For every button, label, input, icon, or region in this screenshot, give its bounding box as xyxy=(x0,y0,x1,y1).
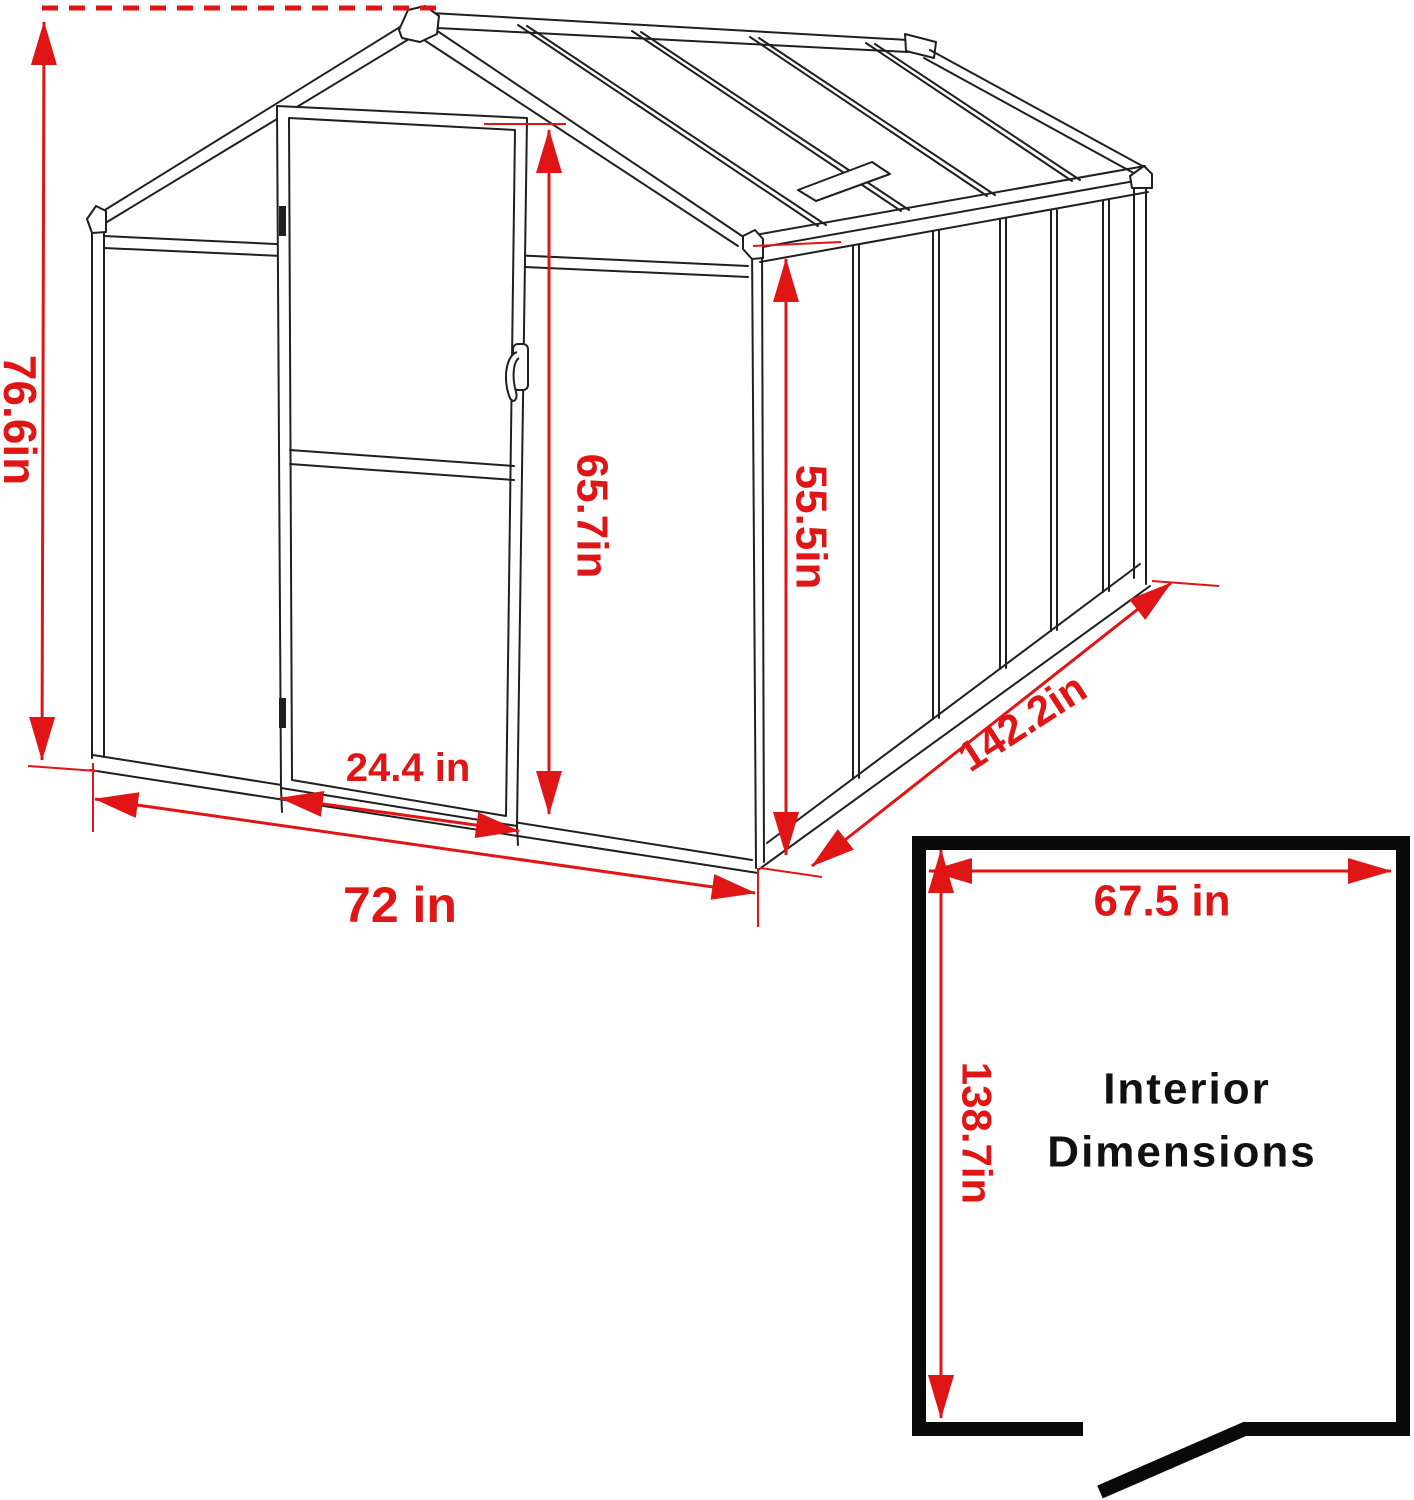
diagram-canvas: 76.6in 72 in 24.4 in 65.7in 55.5in 142.2… xyxy=(0,0,1414,1500)
front-right-corner-cap xyxy=(743,230,763,259)
dim-label-interior-width: 67.5 in xyxy=(1094,877,1231,926)
dim-label-door-width: 24.4 in xyxy=(346,746,471,790)
interior-plan: 67.5 in 138.7in Interior Dimensions xyxy=(912,836,1410,1492)
dim-label-side-wall-height: 55.5in xyxy=(787,465,836,590)
back-corner-cap xyxy=(1130,166,1152,188)
gable-peak-cap xyxy=(399,6,439,42)
dim-label-interior-depth: 138.7in xyxy=(954,1062,1001,1204)
ridge-end-cap xyxy=(905,34,936,58)
left-corner-cap xyxy=(87,206,106,233)
dim-label-overall-height: 76.6in xyxy=(0,355,46,485)
greenhouse-dimension-diagram: 76.6in 72 in 24.4 in 65.7in 55.5in 142.2… xyxy=(0,0,1414,1500)
dim-label-front-width: 72 in xyxy=(343,877,457,933)
plan-door-swing-line xyxy=(1100,1428,1247,1492)
plan-heading-line1: Interior xyxy=(1103,1065,1271,1114)
door-hinge-bottom xyxy=(279,698,286,728)
door xyxy=(277,106,528,845)
plan-heading-line2: Dimensions xyxy=(1047,1128,1316,1177)
dim-label-depth: 142.2in xyxy=(949,664,1094,781)
dim-label-door-height: 65.7in xyxy=(568,454,617,579)
door-hinge-top xyxy=(279,206,286,236)
